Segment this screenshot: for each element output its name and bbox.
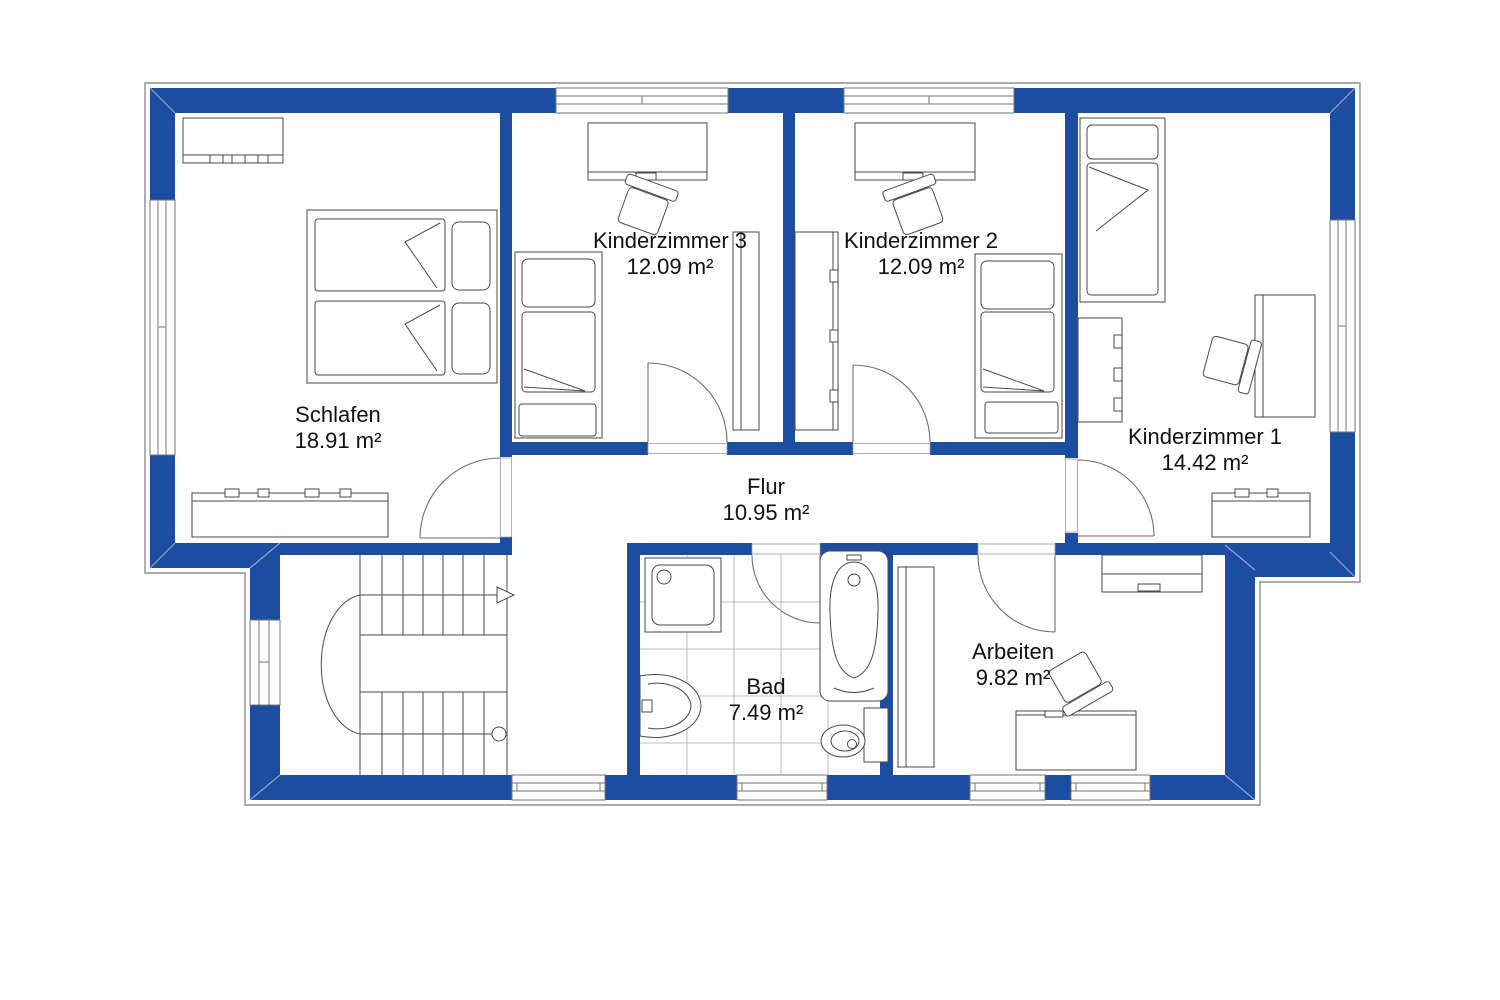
chair — [1201, 330, 1262, 395]
bathtub — [820, 551, 888, 701]
staircase — [321, 555, 514, 775]
pillow — [452, 222, 490, 290]
room-area: 14.42 m² — [1128, 450, 1282, 476]
room-area: 7.49 m² — [729, 700, 804, 726]
room-label-bad: Bad 7.49 m² — [729, 674, 804, 726]
room-area: 10.95 m² — [723, 500, 810, 526]
sideboard — [192, 493, 388, 537]
window-left-stairs — [250, 620, 280, 705]
pillow — [452, 303, 490, 374]
room-label-flur: Flur 10.95 m² — [723, 474, 810, 526]
stair-walkline-start — [492, 727, 506, 741]
sideboard — [1212, 493, 1310, 537]
window-left-schlafen — [150, 200, 175, 455]
window-bottom-arbeiten-right — [1071, 775, 1150, 800]
door-schlafen — [420, 458, 512, 538]
desk — [1016, 711, 1136, 770]
room-area: 9.82 m² — [972, 665, 1054, 691]
room-area: 12.09 m² — [593, 254, 747, 280]
window-bottom-arbeiten-left — [970, 775, 1045, 800]
desk — [855, 123, 975, 180]
cabinet — [898, 567, 934, 767]
door-bad — [752, 544, 820, 623]
stair-direction-arrow — [497, 587, 514, 603]
room-label-kinderzimmer2: Kinderzimmer 2 12.09 m² — [844, 228, 998, 280]
room-label-kinderzimmer3: Kinderzimmer 3 12.09 m² — [593, 228, 747, 280]
desk — [1255, 295, 1315, 417]
room-label-kinderzimmer1: Kinderzimmer 1 14.42 m² — [1128, 424, 1282, 476]
sink — [640, 674, 701, 737]
room-label-arbeiten: Arbeiten 9.82 m² — [972, 639, 1054, 691]
room-name: Kinderzimmer 3 — [593, 228, 747, 254]
window-right-kinderzimmer1 — [1330, 220, 1355, 432]
room-name: Bad — [729, 674, 804, 700]
room-label-schlafen: Schlafen 18.91 m² — [295, 402, 382, 454]
stair-walkline — [321, 595, 498, 734]
door-arbeiten — [978, 544, 1055, 632]
floor-plan-page: Schlafen 18.91 m² Kinderzimmer 3 12.09 m… — [0, 0, 1500, 1000]
window-bottom-bad — [737, 775, 827, 800]
door-kinderzimmer3 — [648, 363, 727, 454]
room-name: Flur — [723, 474, 810, 500]
shower — [645, 558, 721, 632]
furniture-kinderzimmer3 — [515, 123, 759, 438]
room-name: Kinderzimmer 1 — [1128, 424, 1282, 450]
toilet — [821, 708, 888, 762]
room-area: 18.91 m² — [295, 428, 382, 454]
room-name: Arbeiten — [972, 639, 1054, 665]
bad-fixtures — [640, 551, 888, 762]
window-bottom-flur — [512, 775, 605, 800]
window-top-kinderzimmer2 — [844, 88, 1014, 113]
door-kinderzimmer2 — [853, 365, 930, 454]
furniture-kinderzimmer2 — [795, 123, 1062, 438]
desk — [588, 123, 707, 180]
room-area: 12.09 m² — [844, 254, 998, 280]
furniture-schlafen — [183, 118, 497, 537]
room-name: Schlafen — [295, 402, 382, 428]
room-name: Kinderzimmer 2 — [844, 228, 998, 254]
window-top-kinderzimmer3 — [556, 88, 728, 113]
